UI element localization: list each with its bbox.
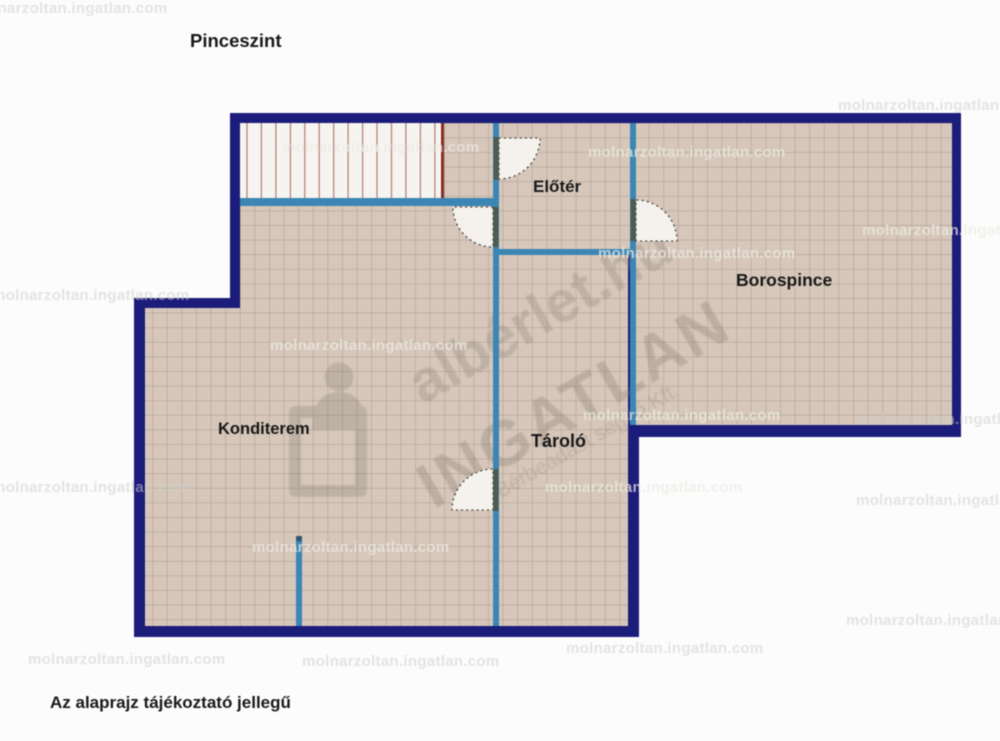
svg-text:Előtér: Előtér (533, 177, 582, 196)
svg-text:Konditerem: Konditerem (218, 420, 310, 438)
svg-text:molnarzoltan.ingatlan.com: molnarzoltan.ingatlan.com (862, 222, 1000, 239)
svg-text:molnarzoltan.ingatlan.com: molnarzoltan.ingatlan.com (0, 287, 190, 304)
svg-text:molnarzoltan.ingatlan.com: molnarzoltan.ingatlan.com (302, 653, 500, 670)
svg-text:molnarzoltan.ingatlan.com: molnarzoltan.ingatlan.com (545, 479, 743, 496)
svg-text:molnarzoltan.ingatlan.com: molnarzoltan.ingatlan.com (838, 97, 1000, 114)
svg-text:Az alaprajz tájékoztató jelleg: Az alaprajz tájékoztató jellegű (50, 693, 291, 712)
svg-text:molnarzoltan.ingatlan.com: molnarzoltan.ingatlan.com (858, 411, 1000, 428)
svg-text:molnarzoltan.ingatlan.com: molnarzoltan.ingatlan.com (252, 539, 450, 556)
svg-text:molnarzoltan.ingatlan.com: molnarzoltan.ingatlan.com (846, 612, 1000, 629)
svg-text:Borospince: Borospince (736, 270, 833, 290)
svg-text:molnarzoltan.ingatlan.com: molnarzoltan.ingatlan.com (0, 479, 190, 496)
svg-text:Pinceszint: Pinceszint (190, 30, 282, 51)
svg-text:molnarzoltan.ingatlan.com: molnarzoltan.ingatlan.com (856, 492, 1000, 509)
svg-text:molnarzoltan.ingatlan.com: molnarzoltan.ingatlan.com (28, 651, 226, 668)
svg-text:molnarzoltan.ingatlan.com: molnarzoltan.ingatlan.com (598, 245, 796, 262)
svg-text:molnarzoltan.ingatlan.com: molnarzoltan.ingatlan.com (270, 337, 468, 354)
svg-text:molnarzoltan.ingatlan.com: molnarzoltan.ingatlan.com (282, 139, 480, 156)
svg-text:molnarzoltan.ingatlan.com: molnarzoltan.ingatlan.com (0, 0, 168, 17)
svg-text:molnarzoltan.ingatlan.com: molnarzoltan.ingatlan.com (588, 144, 786, 161)
svg-text:molnarzoltan.ingatlan.com: molnarzoltan.ingatlan.com (566, 640, 764, 657)
svg-text:molnarzoltan.ingatlan.com: molnarzoltan.ingatlan.com (583, 407, 781, 424)
svg-text:Tároló: Tároló (531, 431, 586, 451)
